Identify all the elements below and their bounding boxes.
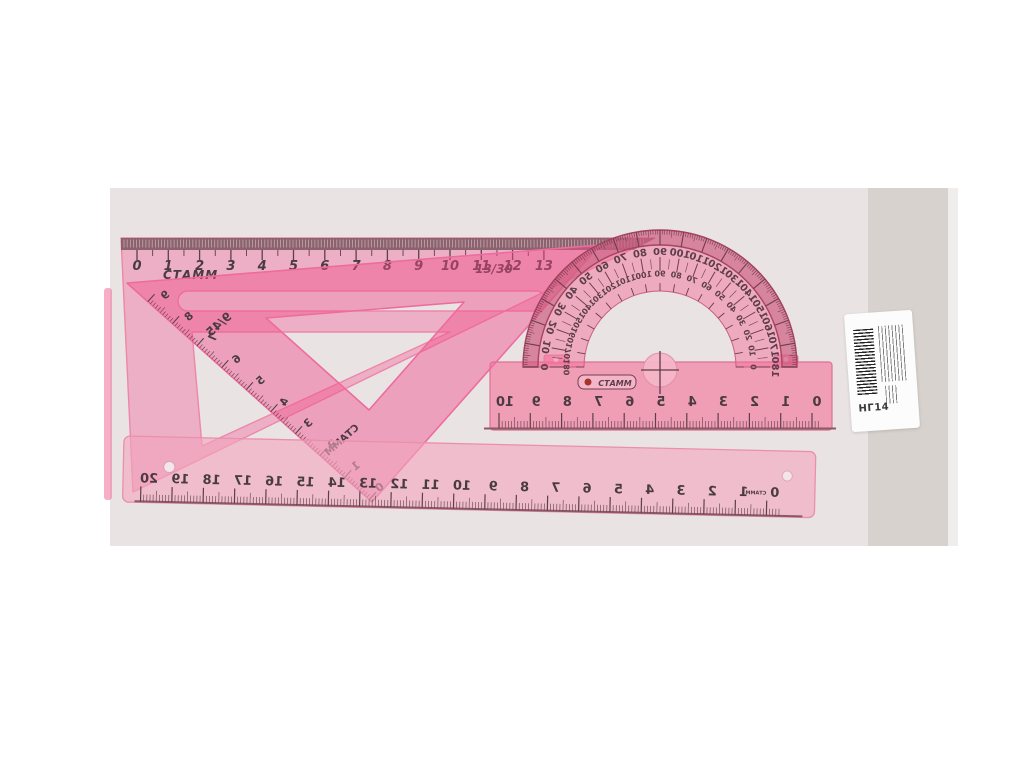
hang-hole-left <box>164 461 175 472</box>
cm-number-mirrored: 6 <box>582 481 591 496</box>
cm-number-mirrored: 8 <box>520 480 529 495</box>
brand-logo-icon <box>585 379 592 386</box>
cm-number-mirrored: 4 <box>645 483 654 498</box>
base-cm-number-mirrored: 2 <box>750 395 759 410</box>
base-cm-number-mirrored: 5 <box>656 395 665 410</box>
barcode-icon <box>853 329 878 396</box>
degree-number-inner: 180 <box>563 359 572 376</box>
barcode-label: НГ14 <box>844 310 920 432</box>
cm-number: 0 <box>132 259 141 274</box>
ruler-20cm: 20191817161514131211109876543210СТАММ <box>123 436 816 518</box>
label-code: НГ14 <box>858 402 889 415</box>
degree-number-outer: 90 <box>653 247 667 258</box>
cm-number-mirrored: 2 <box>708 484 717 499</box>
cm-number-mirrored: 15 <box>296 475 314 490</box>
cm-number-mirrored: 10 <box>453 478 471 493</box>
cm-number-mirrored: 16 <box>265 474 283 489</box>
base-cm-number-mirrored: 1 <box>781 395 790 410</box>
base-cm-number-mirrored: 4 <box>688 395 697 410</box>
base-cm-number-mirrored: 6 <box>625 395 634 410</box>
cm-number-mirrored: 14 <box>328 476 346 491</box>
degree-number-inner: 0 <box>749 364 758 370</box>
base-cm-number-mirrored: 8 <box>563 395 572 410</box>
brand-text-badge: СТАММ <box>598 379 631 388</box>
degree-number-outer: 0 <box>540 364 551 371</box>
product-photo: 012345678910111213СТАММ13/3098765432109/… <box>0 0 1024 768</box>
cm-number-mirrored: 11 <box>421 478 439 493</box>
cm-number-mirrored: 9 <box>489 479 498 494</box>
cm-number-mirrored: 19 <box>171 472 189 487</box>
label-fineprint <box>878 324 908 382</box>
cm-number-mirrored: 20 <box>140 471 158 486</box>
hang-hole-right <box>782 471 792 481</box>
cm-number-mirrored: 13 <box>359 476 377 491</box>
base-cm-number-mirrored: 9 <box>532 395 541 410</box>
degree-number-outer: 180 <box>769 357 780 378</box>
cm-number-mirrored: 3 <box>676 484 685 499</box>
cm-number-mirrored: 5 <box>614 482 623 497</box>
brand-text-small: СТАММ <box>745 490 766 496</box>
base-cm-number-mirrored: 3 <box>719 395 728 410</box>
base-cm-number-mirrored: 10 <box>496 395 514 410</box>
cm-number-mirrored: 7 <box>551 481 560 496</box>
cm-number-mirrored: 12 <box>390 477 408 492</box>
base-cm-number-mirrored: 0 <box>812 395 821 410</box>
cm-number-mirrored: 17 <box>234 474 252 489</box>
cm-number-mirrored: 0 <box>770 486 779 501</box>
base-cm-number-mirrored: 7 <box>594 395 603 410</box>
degree-number-inner: 90 <box>654 270 666 279</box>
cm-number-mirrored: 18 <box>202 473 220 488</box>
cm-number: 3 <box>226 259 235 274</box>
